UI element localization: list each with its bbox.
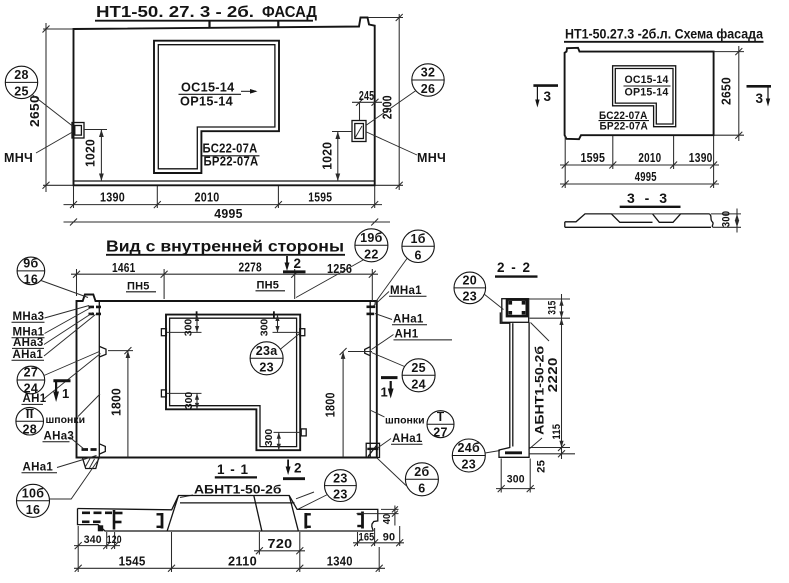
- svg-text:1800: 1800: [109, 388, 123, 416]
- svg-text:27: 27: [24, 366, 39, 380]
- svg-text:БР22-07А: БР22-07А: [600, 121, 649, 133]
- svg-text:26: 26: [421, 82, 436, 96]
- svg-text:23а: 23а: [256, 344, 279, 358]
- svg-text:1020: 1020: [83, 139, 97, 167]
- svg-text:720: 720: [268, 537, 293, 551]
- svg-text:2278: 2278: [238, 261, 262, 275]
- svg-text:24б: 24б: [458, 441, 481, 455]
- svg-text:90: 90: [383, 532, 396, 544]
- svg-text:1800: 1800: [324, 392, 338, 417]
- svg-text:ОР15-14: ОР15-14: [180, 95, 233, 109]
- svg-text:2650: 2650: [719, 77, 733, 105]
- svg-text:40: 40: [381, 514, 393, 525]
- svg-text:32: 32: [421, 66, 436, 80]
- svg-text:2б: 2б: [414, 465, 429, 479]
- svg-text:27: 27: [433, 426, 448, 440]
- svg-text:1595: 1595: [308, 191, 332, 205]
- svg-text:3: 3: [544, 89, 552, 104]
- svg-text:1461: 1461: [112, 261, 136, 275]
- svg-text:МНа1: МНа1: [390, 285, 422, 297]
- svg-text:19б: 19б: [360, 231, 383, 245]
- svg-text:ПН5: ПН5: [127, 281, 150, 293]
- svg-text:300: 300: [263, 429, 275, 447]
- svg-text:2: 2: [294, 461, 302, 476]
- svg-text:23: 23: [333, 472, 348, 486]
- svg-text:300: 300: [507, 474, 525, 486]
- svg-text:1545: 1545: [119, 555, 146, 569]
- svg-text:1б: 1б: [410, 232, 425, 246]
- svg-text:315: 315: [546, 301, 558, 315]
- svg-text:6: 6: [414, 249, 421, 263]
- svg-text:9б: 9б: [23, 257, 38, 271]
- svg-text:245: 245: [359, 89, 375, 103]
- svg-text:2220: 2220: [546, 357, 560, 392]
- svg-text:МНЧ: МНЧ: [4, 151, 33, 165]
- svg-text:1390: 1390: [100, 191, 125, 205]
- svg-text:2010: 2010: [195, 191, 220, 205]
- svg-text:БС22-07А: БС22-07А: [203, 142, 258, 156]
- svg-text:23: 23: [333, 488, 348, 502]
- svg-text:2650: 2650: [28, 95, 42, 127]
- svg-text:4995: 4995: [635, 170, 657, 184]
- svg-text:МНа3: МНа3: [13, 311, 45, 323]
- svg-text:1020: 1020: [321, 142, 335, 170]
- svg-text:Вид с внутренней стороны: Вид с внутренней стороны: [106, 239, 344, 256]
- svg-text:20: 20: [463, 274, 478, 288]
- svg-text:300: 300: [183, 392, 195, 410]
- svg-text:АНа1: АНа1: [13, 349, 44, 361]
- svg-text:шпонки: шпонки: [385, 415, 425, 427]
- svg-text:23: 23: [463, 290, 478, 304]
- svg-text:АБНТ1-50-2б: АБНТ1-50-2б: [533, 346, 547, 435]
- svg-text:340: 340: [84, 534, 102, 546]
- svg-text:25: 25: [411, 361, 426, 375]
- svg-text:1 - 1: 1 - 1: [217, 462, 249, 477]
- svg-text:300: 300: [721, 211, 733, 228]
- svg-text:АН1: АН1: [395, 329, 419, 341]
- svg-text:1390: 1390: [689, 151, 713, 165]
- svg-text:4995: 4995: [214, 207, 243, 221]
- svg-text:120: 120: [107, 534, 122, 546]
- svg-text:3 - 3: 3 - 3: [627, 190, 670, 206]
- svg-text:АНа1: АНа1: [392, 433, 423, 445]
- svg-text:165: 165: [359, 532, 375, 544]
- svg-text:ПН5: ПН5: [257, 280, 280, 292]
- svg-text:300: 300: [183, 319, 195, 337]
- svg-text:2: 2: [294, 256, 302, 271]
- svg-text:НТ1-50. 27. 3 - 2б.ФАСАД: НТ1-50. 27. 3 - 2б.ФАСАД: [96, 4, 317, 21]
- svg-text:28: 28: [22, 423, 37, 437]
- svg-text:2 - 2: 2 - 2: [497, 260, 532, 275]
- svg-text:28: 28: [14, 68, 29, 82]
- svg-text:1: 1: [62, 386, 69, 401]
- svg-text:МНЧ: МНЧ: [417, 151, 446, 165]
- svg-text:ОС15-14: ОС15-14: [625, 74, 670, 86]
- svg-text:1595: 1595: [580, 151, 605, 165]
- svg-text:2010: 2010: [638, 151, 661, 165]
- svg-text:25: 25: [536, 460, 548, 473]
- svg-text:23: 23: [462, 458, 477, 472]
- svg-text:АНа3: АНа3: [44, 431, 75, 443]
- svg-text:3: 3: [756, 91, 764, 106]
- svg-text:АНа3: АНа3: [13, 337, 44, 349]
- svg-text:300: 300: [259, 319, 271, 337]
- svg-text:АБНТ1-50-2б: АБНТ1-50-2б: [194, 483, 282, 497]
- svg-text:БР22-07А: БР22-07А: [204, 155, 259, 169]
- svg-text:1: 1: [381, 385, 388, 400]
- svg-text:ОР15-14: ОР15-14: [625, 87, 670, 99]
- svg-text:24: 24: [411, 378, 426, 392]
- svg-text:АНа1: АНа1: [23, 462, 54, 474]
- svg-text:6: 6: [418, 482, 425, 496]
- svg-text:25: 25: [14, 85, 29, 99]
- svg-text:115: 115: [551, 424, 563, 440]
- svg-text:22: 22: [364, 248, 379, 262]
- svg-text:2110: 2110: [228, 555, 257, 569]
- svg-text:НТ1-50.27.3 -2б.л. Схема фасад: НТ1-50.27.3 -2б.л. Схема фасада: [565, 27, 763, 42]
- svg-text:16: 16: [26, 503, 41, 517]
- svg-text:ОС15-14: ОС15-14: [181, 81, 235, 95]
- svg-text:1256: 1256: [327, 262, 352, 276]
- svg-text:АНа1: АНа1: [393, 314, 424, 326]
- svg-text:23: 23: [259, 361, 274, 375]
- svg-text:1340: 1340: [327, 555, 353, 569]
- svg-text:10б: 10б: [22, 487, 45, 501]
- svg-text:16: 16: [24, 273, 39, 287]
